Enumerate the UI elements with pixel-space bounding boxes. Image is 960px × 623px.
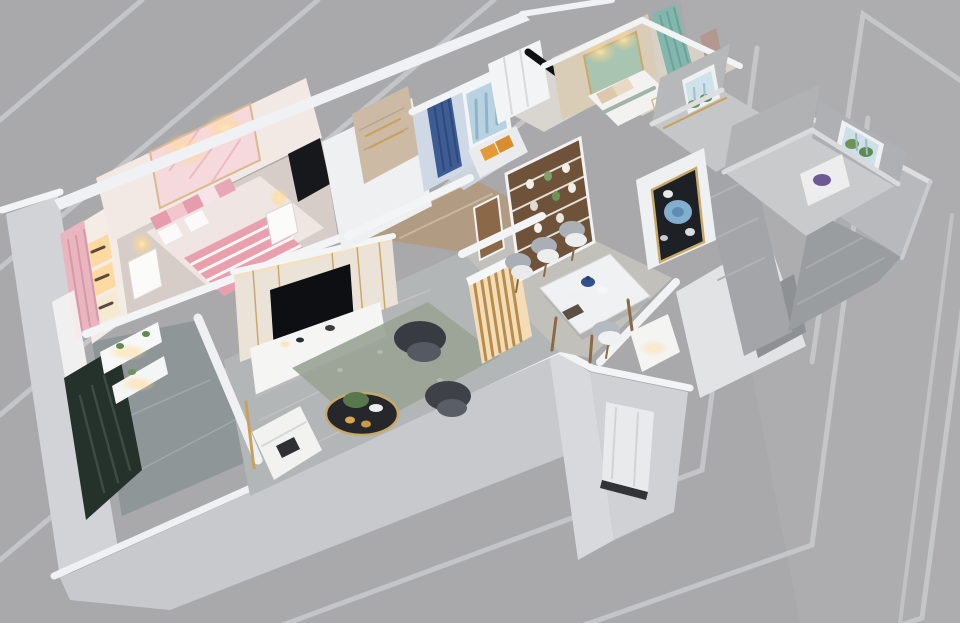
window-city-bar-1 bbox=[476, 100, 477, 138]
window2-city-1 bbox=[856, 134, 857, 150]
art-blob-1 bbox=[663, 190, 673, 198]
gold-decor-2 bbox=[361, 421, 371, 428]
teapot-lid bbox=[586, 276, 591, 280]
rug-fleck-1 bbox=[337, 368, 343, 372]
purple-plant bbox=[813, 174, 831, 186]
rose-center bbox=[672, 207, 684, 217]
table-plate bbox=[369, 404, 383, 412]
book-1 bbox=[526, 179, 534, 189]
book-6 bbox=[568, 183, 576, 193]
lamp-glow-right bbox=[269, 188, 289, 208]
book-4 bbox=[530, 201, 538, 211]
gold-decor-1 bbox=[345, 417, 355, 424]
dining-chair-4-seat bbox=[598, 331, 622, 345]
shelf-plant-1 bbox=[116, 343, 124, 349]
console-candle-glow bbox=[279, 340, 291, 348]
book-5 bbox=[552, 191, 560, 201]
window-city-bar-2 bbox=[486, 94, 487, 132]
book-2 bbox=[544, 171, 552, 181]
book-8 bbox=[556, 213, 564, 223]
console-item-1 bbox=[296, 338, 304, 343]
console-item-2 bbox=[325, 325, 335, 331]
table-leg-3 bbox=[590, 336, 592, 362]
shelf-glow-1 bbox=[108, 343, 148, 361]
plate-1 bbox=[596, 287, 608, 294]
book-7 bbox=[534, 223, 542, 233]
art-blob-2 bbox=[685, 228, 695, 236]
armchair-1-seat bbox=[407, 342, 441, 362]
rug-fleck-2 bbox=[377, 350, 383, 354]
window1-city-1 bbox=[694, 88, 695, 102]
art-blob-3 bbox=[660, 235, 668, 241]
dining-chair-3-seat bbox=[565, 233, 587, 247]
dining-chair-1-seat bbox=[511, 265, 533, 279]
shelf-plant-3 bbox=[128, 369, 136, 375]
dining-chair-2-seat bbox=[537, 249, 559, 263]
armchair-2-seat bbox=[437, 399, 467, 417]
lamp-glow-left bbox=[130, 232, 154, 256]
shelf-plant-2 bbox=[142, 331, 150, 337]
shelf-glow-2 bbox=[120, 376, 156, 392]
entry-door bbox=[602, 402, 654, 492]
scene-svg bbox=[0, 0, 960, 623]
coffee-table-plant bbox=[343, 392, 369, 408]
plate-2 bbox=[569, 293, 581, 300]
shape-root bbox=[0, 0, 960, 623]
apartment-3d-render bbox=[0, 0, 960, 623]
window2-city-2 bbox=[866, 140, 867, 154]
book-3 bbox=[562, 163, 570, 173]
rug-fleck-5 bbox=[437, 378, 443, 382]
sideboard-glow bbox=[638, 340, 670, 356]
